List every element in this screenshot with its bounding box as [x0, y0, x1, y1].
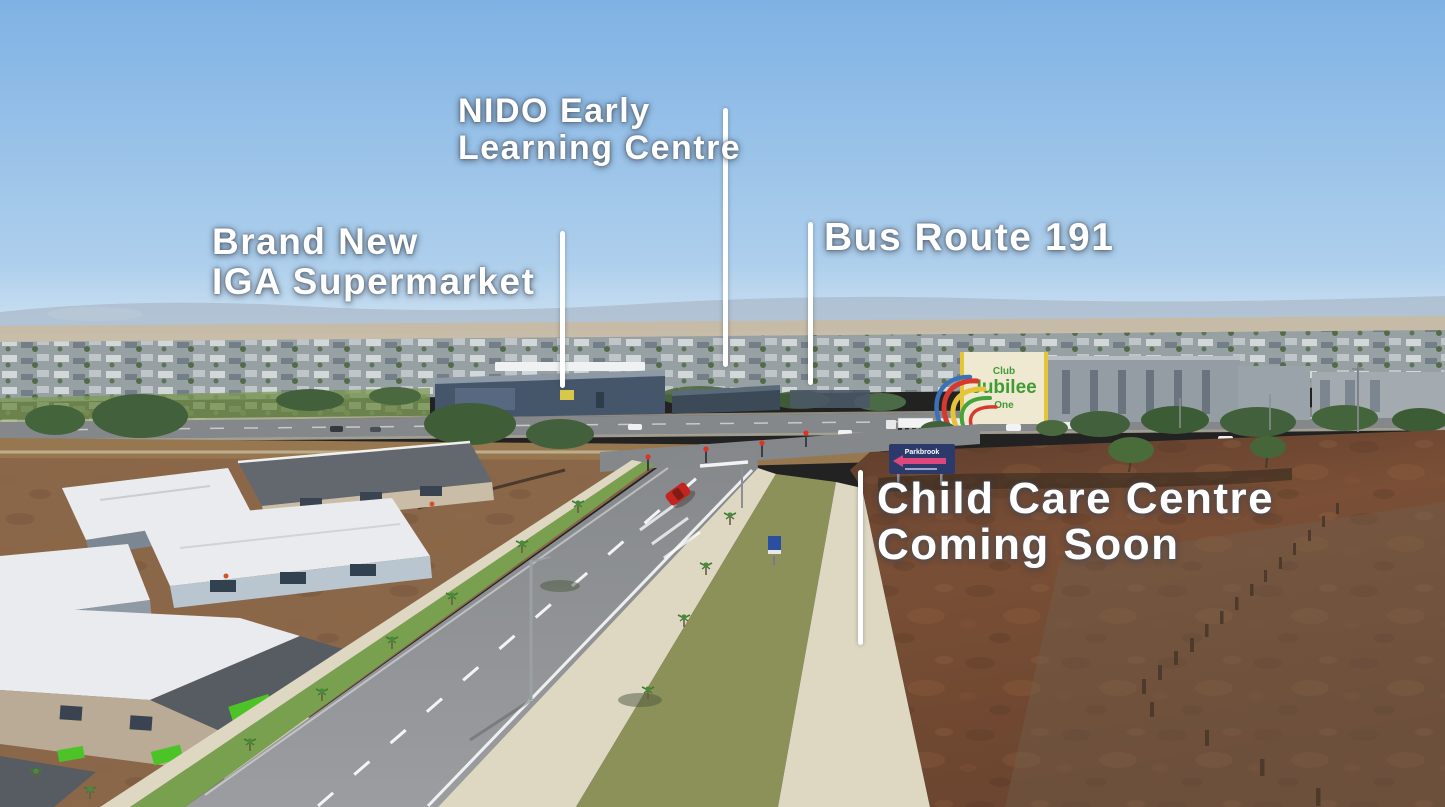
dark-car-2 [370, 427, 381, 432]
jubilee-sign-top-text: Club [993, 366, 1015, 377]
fence-marker-1 [430, 502, 435, 507]
median-tree-shadow-1 [540, 580, 580, 592]
jubilee-sign-sub-text: One [994, 400, 1014, 411]
billboard-title-text: Parkbrook [905, 449, 940, 456]
white-ute [1006, 424, 1021, 431]
annotation-iga-supermarket: Brand New IGA Supermarket [212, 222, 535, 302]
annotation-bus-route: Bus Route 191 [824, 217, 1114, 259]
annotation-nido-line2: Learning Centre [458, 130, 741, 167]
annotation-iga-line1: Brand New [212, 222, 535, 262]
fence-marker-2 [224, 574, 229, 579]
annotation-nido-early-learning: NIDO Early Learning Centre [458, 93, 741, 166]
annotation-child-line2: Coming Soon [877, 522, 1274, 568]
leader-line-bus [808, 222, 813, 385]
white-car-1 [628, 424, 642, 430]
aerial-photo-frame: Club Jubilee One [0, 0, 1445, 807]
leader-line-iga [560, 231, 565, 388]
annotation-child-line1: Child Care Centre [877, 476, 1274, 522]
annotation-nido-line1: NIDO Early [458, 93, 741, 130]
dark-car-1 [330, 426, 343, 432]
leader-line-childcare [858, 470, 863, 645]
annotation-bus-label: Bus Route 191 [824, 217, 1114, 259]
median-tree-shadow-2 [618, 693, 662, 707]
annotation-iga-line2: IGA Supermarket [212, 262, 535, 302]
jubilee-tree-right [1036, 420, 1068, 436]
annotation-child-care: Child Care Centre Coming Soon [877, 476, 1274, 568]
